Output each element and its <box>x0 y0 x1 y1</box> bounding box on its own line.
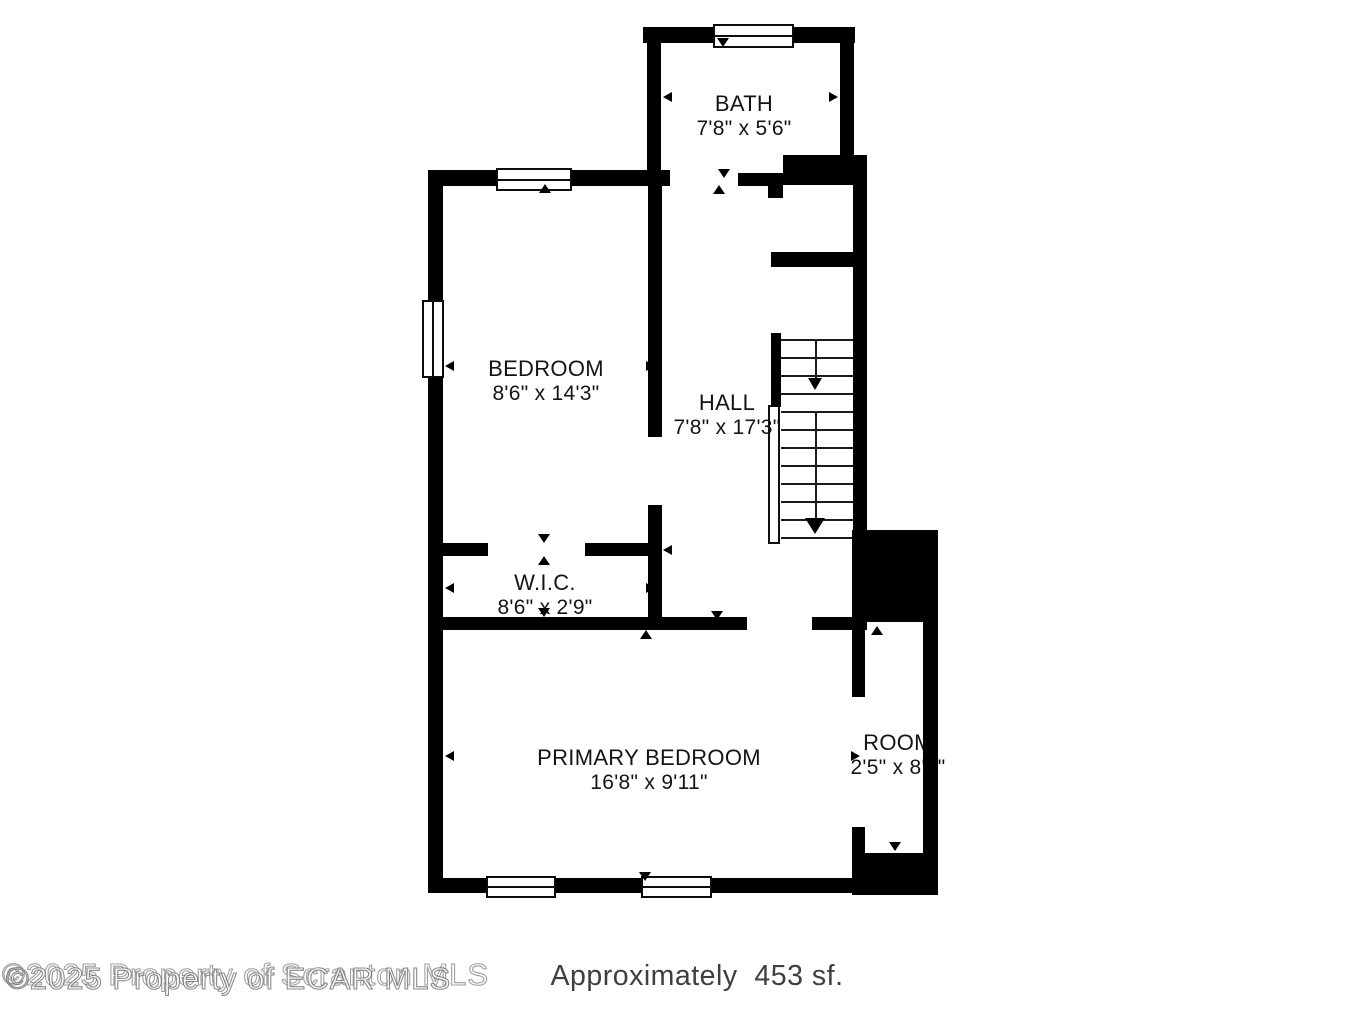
wall-solid-block <box>852 530 938 622</box>
wall <box>771 252 853 267</box>
window <box>641 876 712 898</box>
wall <box>648 186 662 437</box>
door-marker <box>871 626 883 635</box>
dimension-marker <box>851 751 860 761</box>
dimension-marker <box>639 872 651 881</box>
room-dimensions: 7'8" x 5'6" <box>696 117 791 141</box>
room-label-primary-bedroom: PRIMARY BEDROOM 16'8" x 9'11" <box>537 746 761 795</box>
dimension-marker <box>646 583 655 593</box>
room-label-bath: BATH 7'8" x 5'6" <box>696 92 791 141</box>
room-dimensions: 7'8" x 17'3" <box>673 416 780 440</box>
down-arrow-icon <box>805 518 825 534</box>
room-name: BEDROOM <box>488 357 604 382</box>
wall <box>428 617 747 630</box>
door-marker <box>711 611 723 620</box>
wall <box>853 155 867 532</box>
room-name: HALL <box>673 391 780 416</box>
wall <box>585 543 662 556</box>
door-marker <box>718 169 730 178</box>
approximate-area-label: Approximately 453 sf. <box>551 960 844 993</box>
dimension-marker <box>646 361 655 371</box>
door-marker <box>713 185 725 194</box>
room-dimensions: 8'6" x 14'3" <box>488 382 604 406</box>
wall <box>768 185 783 198</box>
wall <box>852 622 865 697</box>
door-marker <box>889 842 901 851</box>
wall <box>428 543 488 556</box>
dimension-marker <box>663 545 672 555</box>
room-name: BATH <box>696 92 791 117</box>
room-name: PRIMARY BEDROOM <box>537 746 761 771</box>
dimension-marker <box>539 184 551 193</box>
window <box>486 876 556 898</box>
wall <box>647 43 661 178</box>
door-marker <box>538 556 550 565</box>
copyright-watermark-overlay: ©2025 Property of ECAR MLS <box>6 961 451 997</box>
wall <box>783 155 854 185</box>
door-marker <box>538 534 550 543</box>
wall <box>852 853 938 895</box>
dimension-marker <box>640 630 652 639</box>
window <box>422 300 444 378</box>
dimension-marker <box>445 361 454 371</box>
dimension-marker <box>445 583 454 593</box>
wall <box>648 505 662 630</box>
dimension-marker <box>717 38 729 47</box>
room-label-bedroom: BEDROOM 8'6" x 14'3" <box>488 357 604 406</box>
down-arrow-icon <box>808 378 822 390</box>
wall <box>428 170 443 893</box>
wall <box>840 43 854 155</box>
room-dimensions: 16'8" x 9'11" <box>537 771 761 795</box>
dimension-marker <box>829 92 838 102</box>
dimension-marker <box>445 751 454 761</box>
wall <box>771 333 781 407</box>
dimension-marker <box>538 608 550 617</box>
stair-guide-line <box>815 339 817 379</box>
floor-plan: BATH 7'8" x 5'6" BEDROOM 8'6" x 14'3" HA… <box>0 0 1365 1024</box>
room-name: W.I.C. <box>497 571 592 596</box>
window <box>496 168 572 191</box>
dimension-marker <box>663 92 672 102</box>
room-label-hall: HALL 7'8" x 17'3" <box>673 391 780 440</box>
stair-guide-line <box>815 411 817 519</box>
